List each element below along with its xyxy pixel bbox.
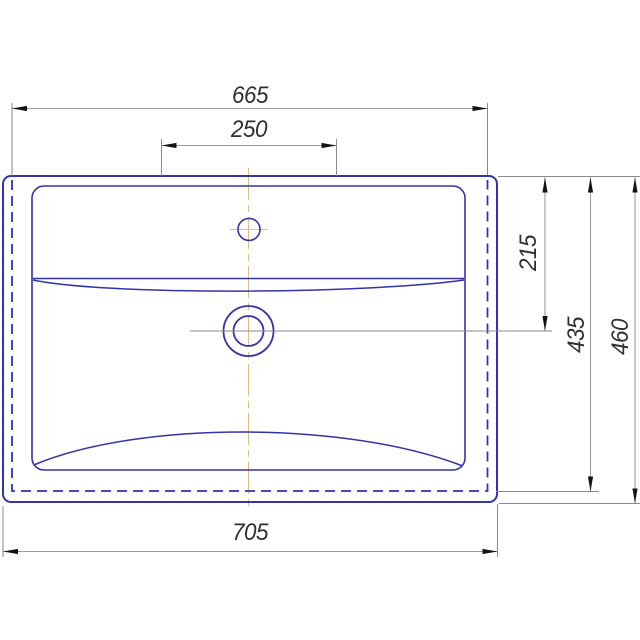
dim-label-overall-width: 705	[232, 519, 269, 546]
drawing-canvas: 665 250 705 215 435 460	[0, 0, 640, 640]
sink-technical-drawing: 665 250 705 215 435 460	[0, 0, 640, 640]
dim-label-hidden-width: 665	[232, 82, 269, 109]
dim-label-faucet-zone-width: 250	[230, 116, 268, 143]
dim-label-drain-offset: 215	[515, 234, 542, 272]
dim-label-hidden-depth: 435	[563, 316, 590, 353]
dim-label-overall-depth: 460	[607, 318, 634, 355]
